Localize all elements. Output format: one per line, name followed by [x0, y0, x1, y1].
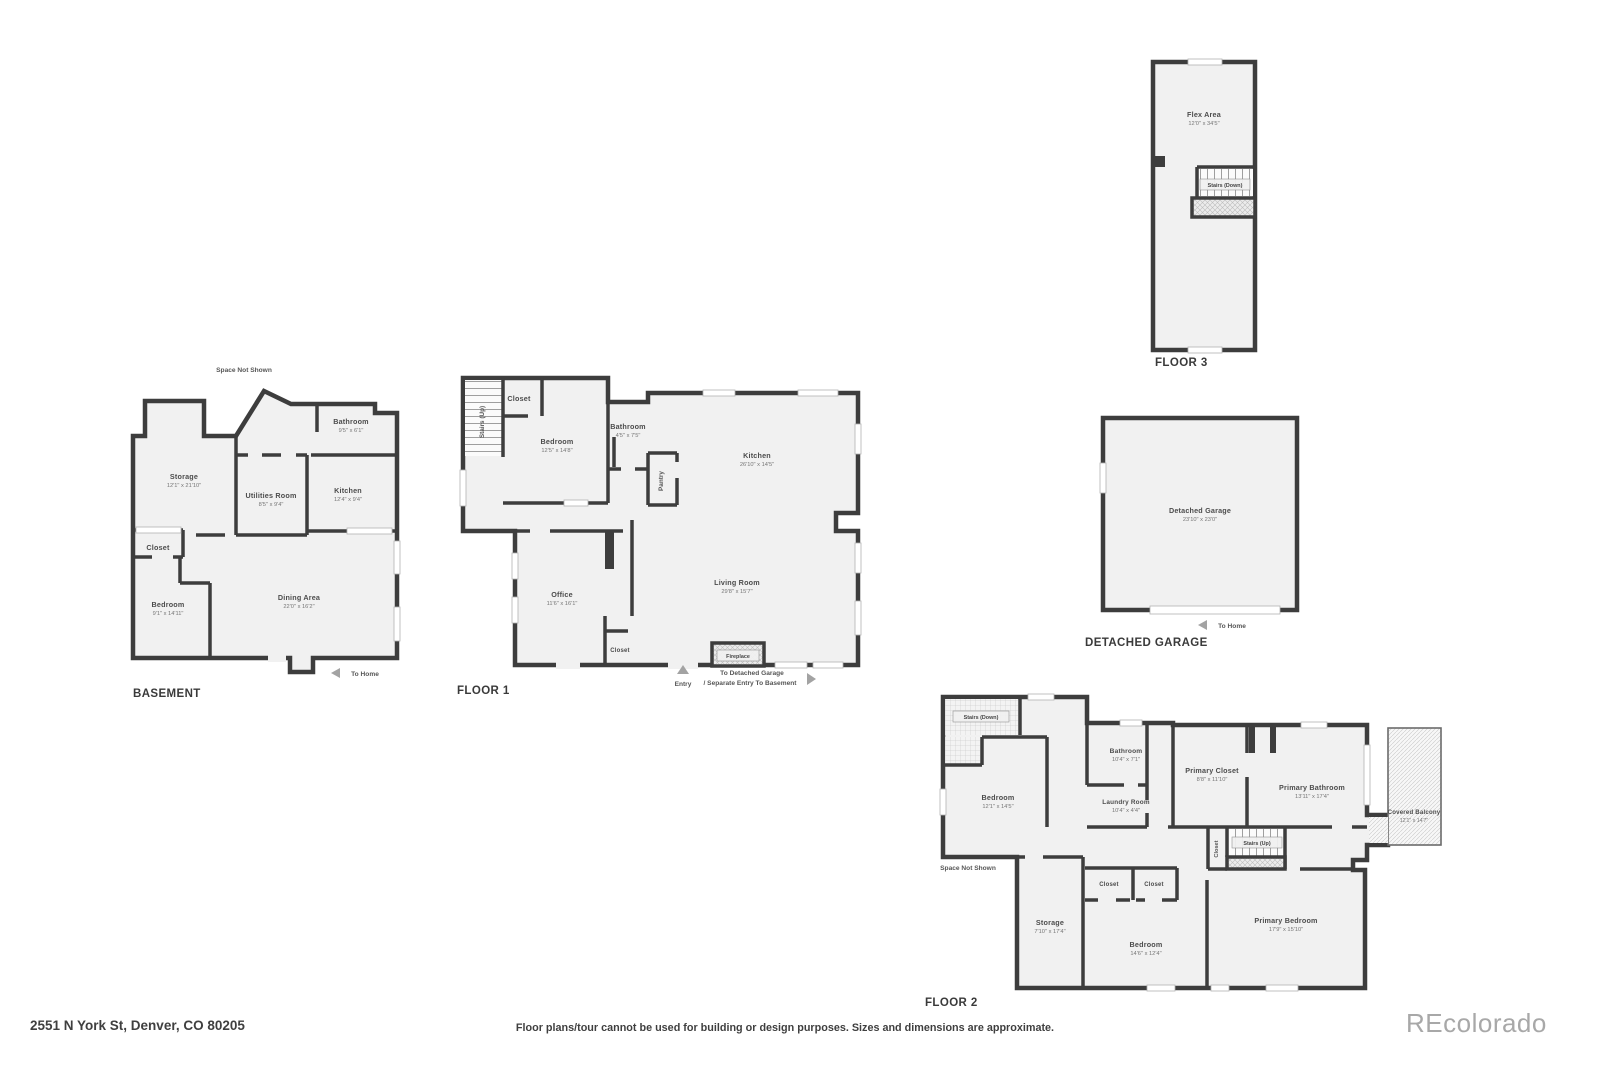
garage-plan: Detached Garage 23'10" x 23'0" To Home D… [1085, 418, 1297, 649]
room-dims: 8'8" x 11'10" [1197, 777, 1228, 783]
window [798, 390, 838, 396]
balcony-corridor-hatch [1369, 817, 1388, 843]
room-label: Closet [507, 394, 531, 403]
room-label: Primary Bathroom [1279, 783, 1345, 792]
wall-stub [1153, 156, 1165, 167]
plan-title-floor3: FLOOR 3 [1155, 357, 1208, 369]
window [813, 662, 843, 668]
room-label: Bedroom [1130, 940, 1163, 949]
window [703, 390, 735, 396]
to-garage-label-line2: / Separate Entry To Basement [704, 680, 798, 687]
room-dims: 22'0" x 16'2" [283, 604, 314, 610]
room-label: Closet [1144, 882, 1164, 888]
room-label: Dining Area [278, 593, 321, 602]
window [940, 789, 946, 815]
window [1120, 720, 1142, 726]
basement-plan: Space Not Shown Bathroom 9'5" x 6'1" Sto… [133, 367, 400, 700]
room-label: Laundry Room [1102, 799, 1150, 806]
room-dims: 11'6" x 16'1" [547, 601, 578, 607]
room-label: Bedroom [982, 793, 1015, 802]
window [1188, 59, 1222, 65]
floor-plans-canvas: Space Not Shown Bathroom 9'5" x 6'1" Sto… [0, 0, 1600, 1066]
room-dims: 9'1" x 14'11" [153, 611, 184, 617]
window [775, 662, 807, 668]
stairs-down-label: Stairs (Down) [1208, 183, 1243, 189]
window [1100, 463, 1106, 493]
window [512, 553, 518, 579]
window [855, 543, 861, 573]
recolorado-watermark: REcolorado [1406, 1008, 1547, 1039]
stairs-up-label: Stairs (Up) [1243, 841, 1270, 847]
door-gap [556, 660, 580, 669]
room-label: Storage [1036, 918, 1064, 927]
room-label: Primary Bedroom [1254, 916, 1317, 925]
pantry-label: Pantry [658, 471, 665, 491]
to-home-arrow-icon [331, 668, 340, 678]
floor1-outline [463, 378, 858, 665]
window [855, 601, 861, 635]
space-not-shown-label: Space Not Shown [216, 367, 272, 374]
room-dims: 8'5" x 9'4" [259, 502, 284, 508]
plan-title-garage: DETACHED GARAGE [1085, 637, 1208, 649]
room-dims: 9'5" x 6'1" [339, 428, 364, 434]
room-dims: 12'0" x 34'5" [1188, 121, 1219, 127]
window [1028, 694, 1054, 700]
to-home-label: To Home [1218, 623, 1246, 630]
wall-stub [1249, 725, 1255, 753]
room-dims: 7'10" x 17'4" [1034, 929, 1065, 935]
window [1301, 722, 1327, 728]
window [1211, 985, 1229, 991]
room-label: Detached Garage [1169, 506, 1231, 515]
room-dims: 12'1" x 14'7" [1400, 818, 1429, 824]
window [855, 424, 861, 454]
window [512, 597, 518, 623]
wall-stub [605, 531, 614, 569]
room-dims: 29'8" x 15'7" [721, 589, 752, 595]
stairs-down-label: Stairs (Down) [964, 715, 999, 721]
room-dims: 12'4" x 9'4" [334, 497, 362, 503]
room-label: Primary Closet [1185, 766, 1239, 775]
property-address: 2551 N York St, Denver, CO 80205 [30, 1018, 245, 1033]
window [1188, 347, 1222, 353]
space-not-shown-label: Space Not Shown [940, 865, 996, 872]
window [136, 527, 181, 533]
room-label: Closet [610, 648, 630, 654]
room-dims: 23'10" x 23'0" [1183, 517, 1217, 523]
room-dims: 12'1" x 21'10" [167, 483, 201, 489]
door-gap [268, 654, 286, 662]
room-label: Bathroom [1110, 748, 1143, 755]
floor-plan-sheet: Space Not Shown Bathroom 9'5" x 6'1" Sto… [0, 0, 1600, 1066]
window [564, 500, 588, 506]
stairs-landing-hatch [1227, 857, 1285, 869]
stairs-up-label: Stairs (Up) [479, 406, 486, 438]
garage-door [1150, 606, 1280, 614]
room-dims: 12'1" x 14'5" [982, 804, 1013, 810]
room-label: Kitchen [334, 486, 362, 495]
floor3-plan: Stairs (Down) Flex Area 12'0" x 34'5" FL… [1153, 59, 1255, 369]
to-home-label: To Home [351, 671, 379, 678]
room-label: Living Room [714, 578, 760, 587]
room-label: Bedroom [152, 600, 185, 609]
room-dims: 17'9" x 15'10" [1269, 927, 1303, 933]
stairs-landing-hatch [1192, 198, 1255, 217]
hall-closet-label: Closet [1214, 840, 1220, 857]
entry-label: Entry [675, 681, 692, 688]
room-label: Flex Area [1187, 110, 1222, 119]
window [347, 528, 392, 534]
window [1364, 745, 1370, 805]
floor1-plan: Fireplace Stairs (Up) Pantry Closet Bedr… [457, 378, 861, 697]
fireplace-label: Fireplace [726, 654, 750, 660]
window [460, 470, 466, 506]
room-dims: 12'5" x 14'8" [541, 448, 572, 454]
window [394, 607, 400, 641]
room-label: Bathroom [333, 417, 369, 426]
floor2-plan: Stairs (Down) Stairs (Up) Closet Bedroom… [925, 694, 1441, 1009]
room-label: Bathroom [610, 422, 646, 431]
stairs-down-hatch [945, 737, 980, 764]
room-label: Office [551, 590, 573, 599]
room-dims: 4'5" x 7'5" [616, 433, 641, 439]
to-garage-arrow-icon [807, 673, 816, 685]
room-dims: 26'10" x 14'5" [740, 462, 774, 468]
floor2-outline [943, 697, 1388, 988]
window [1266, 985, 1298, 991]
room-label: Kitchen [743, 451, 771, 460]
room-label: Closet [146, 543, 170, 552]
room-label: Storage [170, 472, 198, 481]
plan-title-floor2: FLOOR 2 [925, 997, 978, 1009]
disclaimer-text: Floor plans/tour cannot be used for buil… [490, 1022, 1080, 1034]
to-home-arrow-icon [1198, 620, 1207, 630]
plan-title-basement: BASEMENT [133, 688, 201, 700]
room-label: Closet [1099, 882, 1119, 888]
room-label: Bedroom [541, 437, 574, 446]
covered-balcony [1388, 728, 1441, 845]
room-label: Utilities Room [245, 491, 296, 500]
room-dims: 10'4" x 7'1" [1112, 757, 1140, 763]
room-dims: 14'6" x 12'4" [1130, 951, 1161, 957]
room-label: Covered Balcony [1388, 809, 1441, 816]
plan-title-floor1: FLOOR 1 [457, 685, 510, 697]
window [1147, 985, 1175, 991]
room-dims: 10'4" x 4'4" [1112, 808, 1140, 814]
to-garage-label-line1: To Detached Garage [720, 670, 784, 677]
wall-stub [1270, 725, 1276, 753]
window [394, 541, 400, 574]
room-dims: 13'11" x 17'4" [1295, 794, 1329, 800]
